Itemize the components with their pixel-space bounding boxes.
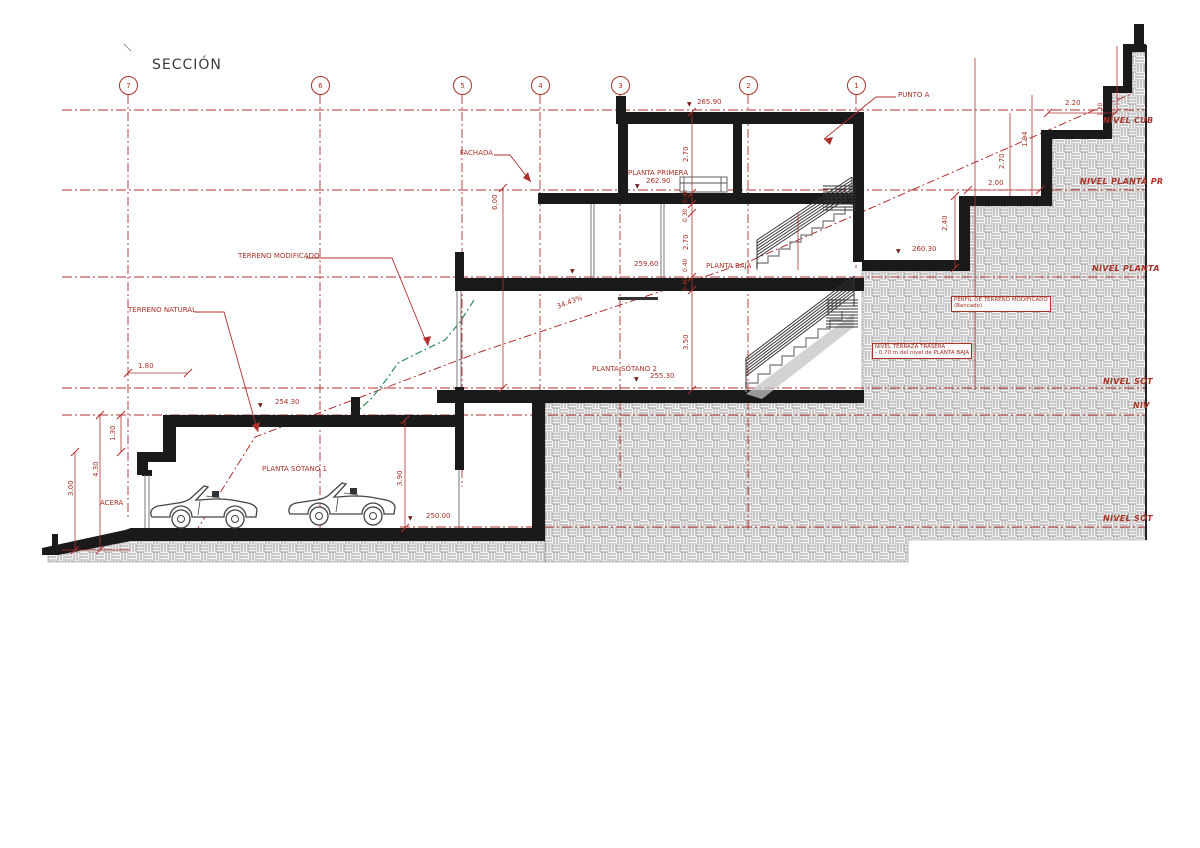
bancado-step-a <box>1103 86 1112 139</box>
level-marker-255: ▼ <box>634 377 639 383</box>
nivel-cubierta-label: NIVEL CUB <box>1103 117 1153 125</box>
dim-1-80: 1.80 <box>138 363 154 370</box>
dim-0-30: 0.30 <box>683 209 689 222</box>
bancado-step-b <box>1123 50 1132 93</box>
grid-number-4: 4 <box>538 82 542 90</box>
nivel-sotano-label-1: NIVEL SÓT <box>1103 378 1153 386</box>
grid-number-2: 2 <box>746 82 750 90</box>
beam-stub <box>351 397 360 416</box>
stair-lower <box>746 276 858 399</box>
ground-hatch-right <box>545 52 1146 562</box>
dim-1-10: 1.10 <box>1098 103 1104 116</box>
elev-254-30: 254.30 <box>275 399 300 406</box>
dim-1-94: 1.94 <box>1022 131 1029 147</box>
punto-a-label: PUNTO A <box>898 92 929 99</box>
dim-1-30: 1.30 <box>110 425 117 441</box>
dim-0-40-a: 0.40 <box>683 190 689 203</box>
dim-4-30: 4.30 <box>93 461 100 477</box>
bancado-band-2 <box>1041 130 1112 139</box>
bancado-wall-1 <box>959 196 970 271</box>
section-geometry <box>0 0 1200 848</box>
perfil-terreno-line2: (Bancado) <box>954 304 1048 310</box>
grid-bubble-5: 5 <box>453 76 472 95</box>
terraza-trasera-line2: - 0,70 m del nivel de PLANTA BAJA <box>875 351 969 357</box>
grid-bubble-4: 4 <box>531 76 550 95</box>
level-marker-262: ▼ <box>635 184 640 190</box>
grid-bubble-6: 6 <box>311 76 330 95</box>
glazing-head <box>142 470 152 476</box>
elev-259-60: 259.60 <box>634 261 659 268</box>
dim-2-70-a: 2.70 <box>683 146 690 162</box>
grid-bubble-3: 3 <box>611 76 630 95</box>
grid-number-7: 7 <box>126 82 130 90</box>
dim-2-70-b: 2.70 <box>683 234 690 250</box>
elev-250-00: 250.00 <box>426 513 451 520</box>
dim-6-00: 6.00 <box>492 194 499 210</box>
terreno-natural-label: TERRENO NATURAL <box>128 307 196 314</box>
bancado-band-1 <box>959 196 1052 206</box>
planta-baja-label: PLANTA BAJA <box>706 263 751 270</box>
planta-baja-slab <box>457 278 864 291</box>
dim-2-70-c: 2.70 <box>999 153 1006 169</box>
dim-2-40: 2.40 <box>942 215 949 231</box>
car-1 <box>151 486 257 528</box>
car-2 <box>289 483 395 525</box>
dim-3-00: 3.00 <box>68 480 75 496</box>
grid-number-1: 1 <box>854 82 858 90</box>
acera-label: ACERA <box>100 500 123 507</box>
grid-number-6: 6 <box>318 82 322 90</box>
level-marker-265: ▼ <box>687 102 692 108</box>
level-marker-260: ▼ <box>896 249 901 255</box>
terrace-slab <box>862 260 968 271</box>
dim-0-40-c: 0.40 <box>683 278 689 291</box>
level-marker-254: ▼ <box>258 403 263 409</box>
ground-hatch-left <box>48 541 545 562</box>
sotano2-slab <box>437 390 864 403</box>
roof-slab <box>616 112 864 124</box>
sotano1-right-wall <box>532 403 545 540</box>
grid-bubble-7: 7 <box>119 76 138 95</box>
level-marker-259: ▼ <box>570 269 575 275</box>
acera-curb <box>52 534 58 548</box>
nivel-planta-primera-label: NIVEL PLANTA PR <box>1080 178 1163 186</box>
terraza-trasera-box: NIVEL TERRAZA TRASERA - 0,70 m del nivel… <box>872 343 972 359</box>
dim-3-90: 3.90 <box>397 470 404 486</box>
sill-line <box>618 297 658 300</box>
planta-sotano1-label: PLANTA SÓTANO 1 <box>262 466 327 473</box>
drawing-title: SECCIÓN <box>152 57 222 73</box>
interior-wall <box>733 124 742 193</box>
elev-262-90: 262.90 <box>646 178 671 185</box>
grid-number-5: 5 <box>460 82 464 90</box>
upper-left-wall <box>618 112 628 204</box>
bancado-top-stub <box>1134 24 1144 46</box>
right-exterior-wall <box>853 112 864 262</box>
nivel-sotano-label-3: NIVEL SÓT <box>1103 515 1153 523</box>
bancado-wall-2 <box>1041 130 1052 206</box>
terreno-modificado-label: TERRENO MODIFICADO <box>238 253 320 260</box>
nivel-label-2: NIV <box>1133 402 1150 410</box>
grid-bubble-2: 2 <box>739 76 758 95</box>
level-marker-250: ▼ <box>408 516 413 522</box>
perfil-terreno-box: PERFIL DE TERRENO MODIFICADO (Bancado) <box>951 296 1051 312</box>
fachada-label: FACHADA <box>460 150 493 157</box>
elev-265-90: 265.90 <box>697 99 722 106</box>
dim-3-50: 3.50 <box>683 334 690 350</box>
dim-2-20: 2.20 <box>1065 100 1081 107</box>
nivel-planta-baja-label: NIVEL PLANTA <box>1092 265 1160 273</box>
grid-number-3: 3 <box>618 82 622 90</box>
sotano1-ceiling-slab <box>163 415 457 427</box>
dim-0-40-b: 0.40 <box>683 259 689 272</box>
planta-baja-left-wall <box>455 252 464 291</box>
section-drawing: SECCIÓN 7 6 5 4 3 2 1 NIVEL CUB NIVEL PL… <box>0 0 1200 848</box>
dim-2-00: 2.00 <box>988 180 1004 187</box>
planta-sotano2-label: PLANTA SÓTANO 2 <box>592 366 657 373</box>
planta-primera-slab <box>538 193 864 204</box>
grid-bubble-1: 1 <box>847 76 866 95</box>
sotano1-floor-slab <box>130 528 545 541</box>
elev-260-30: 260.30 <box>912 246 937 253</box>
elev-255-30: 255.30 <box>650 373 675 380</box>
